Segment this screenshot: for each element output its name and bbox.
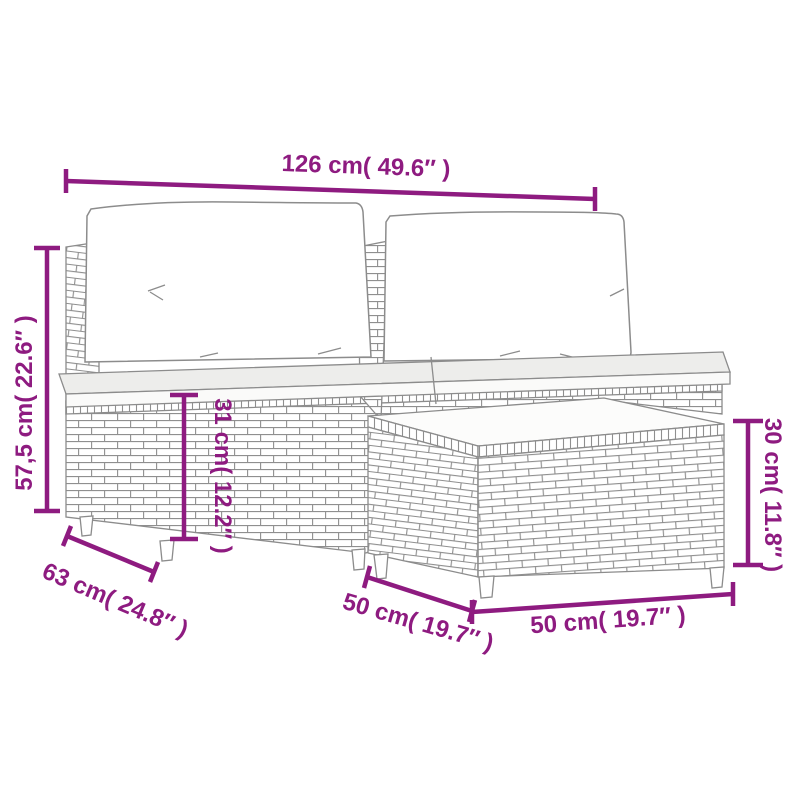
ottoman-line-art xyxy=(368,398,724,577)
dimension-label-seat-height: 31 cm( 12.2″ ) xyxy=(208,398,236,554)
dimension-label-ottoman-height: 30 cm( 11.8″ ) xyxy=(758,418,786,572)
ottoman-front-face xyxy=(478,435,724,577)
ottoman-leg xyxy=(710,567,724,588)
back-cushion-left xyxy=(85,202,371,362)
sofa-leg xyxy=(352,549,365,570)
product-dimension-diagram: 126 cm( 49.6″ ) 57,5 cm( 22.6″ ) 31 cm( … xyxy=(0,0,800,800)
sofa-leg xyxy=(160,540,174,561)
furniture-illustration xyxy=(0,0,800,800)
dimension-label-total-height: 57,5 cm( 22.6″ ) xyxy=(11,315,39,491)
ottoman-leg xyxy=(479,576,494,598)
sofa-leg xyxy=(80,516,93,536)
back-cushion-right xyxy=(384,212,631,361)
dimension-label-total-width: 126 cm( 49.6″ ) xyxy=(281,150,451,184)
ottoman-leg xyxy=(374,554,388,579)
